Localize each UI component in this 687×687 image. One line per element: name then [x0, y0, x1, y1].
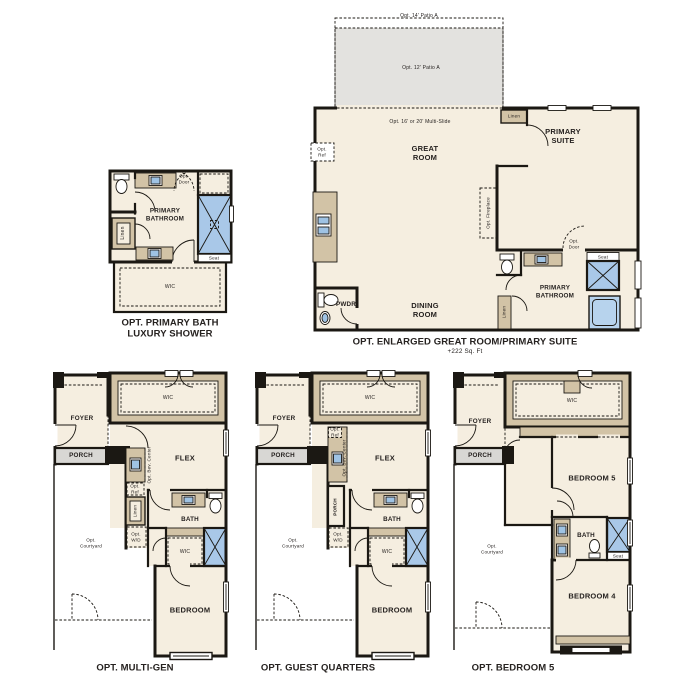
- closet-band: [556, 636, 630, 644]
- plan-guest-quarters: FOYER PORCH WIC FLEX Opt. Ref Opt. Bev. …: [254, 370, 430, 680]
- label-linen: Linen: [508, 113, 520, 119]
- room-label-bedroom5: BEDROOM 5: [568, 474, 615, 483]
- room-label-foyer: FOYER: [273, 415, 296, 423]
- sink-icon: [320, 312, 330, 325]
- label-opt-wd: Opt. W/D: [333, 532, 343, 543]
- label-opt-door: Opt. Door: [179, 174, 190, 185]
- room-label-wic: WIC: [163, 395, 173, 401]
- plan-caption: OPT. ENLARGED GREAT ROOM/PRIMARY SUITE: [353, 336, 578, 347]
- plan-caption: OPT. MULTI-GEN: [96, 662, 173, 673]
- great-room-drawing: [308, 8, 640, 356]
- room-label-bedroom4: BEDROOM 4: [568, 592, 615, 601]
- bedroom5-drawing: [452, 370, 638, 662]
- room-label-pwdr: PWDR: [336, 301, 356, 309]
- kitchen-island-icon: [313, 192, 337, 262]
- label-bev-center: Opt. Bev. Center: [146, 446, 152, 483]
- room-label-flex: FLEX: [375, 454, 395, 463]
- room-label-bath: BATH: [577, 532, 595, 540]
- room-label-foyer: FOYER: [469, 418, 492, 426]
- label-opt-ref: Opt. Ref: [317, 147, 326, 158]
- room-label-wic: WIC: [365, 395, 375, 401]
- room-label-bedroom: BEDROOM: [372, 606, 413, 615]
- label-linen: Linen: [132, 505, 138, 517]
- window: [572, 648, 610, 653]
- room-label-bedroom: BEDROOM: [170, 606, 211, 615]
- primary-bath-drawing: [108, 168, 233, 318]
- room-label-wic2: WIC: [180, 549, 190, 555]
- label-patio-12: Opt. 12' Patio A: [402, 65, 440, 71]
- label-bev-center: Opt. Bev. Center: [341, 439, 347, 476]
- plan-caption: OPT. PRIMARY BATH LUXURY SHOWER: [121, 318, 218, 341]
- room-label-primary-bathroom: PRIMARY BATHROOM: [146, 207, 184, 222]
- plan-multi-gen: FOYER PORCH WIC FLEX Opt. Bev. Center Op…: [52, 370, 228, 680]
- room-label-wic: WIC: [165, 284, 175, 290]
- plan-enlarged-great-room: Opt. 14' Patio A Opt. 12' Patio A Opt. 1…: [308, 8, 640, 368]
- vanity-sink-icon: [135, 173, 176, 188]
- shower-icon: [406, 528, 428, 566]
- label-opt-fireplace: Opt. Fireplace: [485, 197, 491, 229]
- patio-area: [335, 18, 503, 108]
- room-label-primary-bathroom: PRIMARY BATHROOM: [536, 284, 574, 299]
- label-opt-wd: Opt. W/D: [131, 532, 141, 543]
- room-label-bath: BATH: [383, 516, 401, 524]
- vanity-sink-icon: [172, 493, 205, 507]
- room-label-primary-suite: PRIMARY SUITE: [545, 127, 581, 145]
- toilet-icon: [209, 493, 222, 513]
- shower-icon: [204, 528, 226, 566]
- label-seat: Seat: [209, 255, 219, 261]
- label-opt-door: Opt. Door: [569, 239, 580, 250]
- label-courtyard: Opt. Courtyard: [481, 544, 503, 555]
- plan-caption: OPT. GUEST QUARTERS: [261, 662, 375, 673]
- plan-subcaption: +222 Sq. Ft: [448, 348, 483, 356]
- vanity-sink-icon: [136, 247, 173, 260]
- double-vanity-icon: [554, 519, 570, 561]
- room-label-wic: WIC: [567, 398, 577, 404]
- room-label-dining-room: DINING ROOM: [411, 301, 438, 319]
- room-label-bath: BATH: [181, 516, 199, 524]
- label-patio-14: Opt. 14' Patio A: [400, 13, 438, 19]
- room-label-great-room: GREAT ROOM: [412, 144, 439, 162]
- shower-icon: [198, 195, 231, 262]
- room-label-wic2: WIC: [382, 549, 392, 555]
- label-seat: Seat: [613, 553, 623, 559]
- guest-quarters-drawing: [254, 370, 430, 662]
- toilet-icon: [589, 540, 600, 559]
- vanity-sink-icon: [524, 253, 562, 266]
- label-opt-ref: Opt. Ref: [130, 484, 139, 495]
- floorplan-sheet: PRIMARY BATHROOM WIC Linen Seat Opt. Doo…: [0, 0, 687, 687]
- room-label-porch: PORCH: [69, 452, 93, 460]
- plan-primary-bath-luxury-shower: PRIMARY BATHROOM WIC Linen Seat Opt. Doo…: [108, 168, 233, 348]
- label-linen: Linen: [501, 306, 507, 318]
- toilet-icon: [500, 254, 514, 274]
- bathtub-icon: [589, 296, 620, 329]
- room-label-porch: PORCH: [271, 452, 295, 460]
- label-multi-slide: Opt. 16' or 20' Multi-Slide: [389, 119, 450, 125]
- plan-bedroom5: FOYER PORCH WIC BEDROOM 5 BATH Seat BEDR…: [452, 370, 638, 680]
- bev-center-counter: [126, 448, 145, 482]
- room-label-porch: PORCH: [468, 452, 492, 460]
- vanity-sink-icon: [374, 493, 407, 507]
- label-courtyard: Opt. Courtyard: [80, 538, 102, 549]
- label-opt-ref: Opt. Ref: [330, 427, 339, 438]
- label-seat: Seat: [598, 254, 608, 260]
- plan-caption: OPT. BEDROOM 5: [472, 662, 555, 673]
- room-label-flex: FLEX: [175, 454, 195, 463]
- label-linen: Linen: [120, 226, 126, 239]
- toilet-icon: [411, 493, 424, 513]
- label-side-porch: PORCH: [332, 498, 338, 516]
- multi-gen-drawing: [52, 370, 228, 662]
- label-courtyard: Opt. Courtyard: [282, 538, 304, 549]
- room-label-foyer: FOYER: [71, 415, 94, 423]
